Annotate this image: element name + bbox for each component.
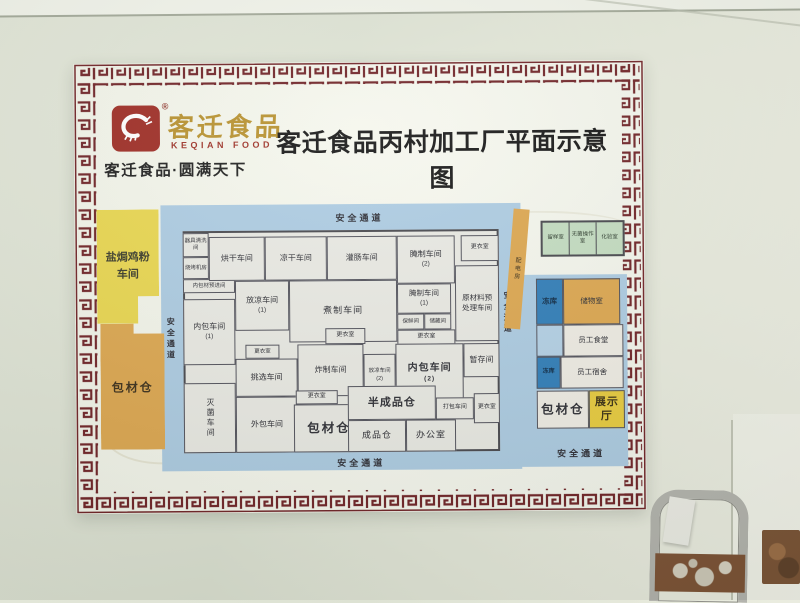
room-freezer-2: 冻库 (536, 357, 560, 389)
room-freezer-1: 冻库 (536, 279, 563, 325)
room-changing-above-frying: 更衣室 (325, 328, 365, 344)
lab-building: 留样室 无菌操作室 化验室 (541, 220, 625, 257)
brand-name-en: KEQIAN FOOD (171, 140, 273, 151)
room-sample-retention: 留样室 (543, 223, 570, 255)
factory-floorplan-sign: ® 客迁食品 KEQIAN FOOD 客迁食品·圆满天下 客迁食品丙村加工厂平面… (73, 60, 646, 514)
room-pack-material-warehouse-right: 包材仓 (537, 390, 589, 428)
room-changing-top: 更衣室 (461, 235, 499, 261)
room-finished-goods-warehouse: 成品仓 (348, 420, 406, 452)
room-utensil-washing: 器具清洗间 (183, 233, 209, 257)
floor-plan: 安全通道 安全通道 安全通道 安全通道 安全通道 盐焗鸡粉车间 包材仓 器具清洗… (94, 200, 630, 478)
room-cooling-workshop-1: 放凉车间(1) (235, 280, 289, 330)
shrimp-icon (117, 111, 155, 145)
room-unlabeled-blue (536, 325, 563, 357)
rusty-wall-fixture (762, 530, 800, 584)
room-sterile-operation: 无菌操作室 (570, 222, 597, 254)
room-curing-workshop-1: 腌制车间(1) (397, 283, 451, 313)
room-showroom: 展示厅 (589, 390, 625, 428)
room-changing-above-packstore: 更衣室 (296, 390, 338, 404)
room-temporary-storage: 暂存间 (463, 343, 499, 377)
passage-bottom-right-label: 安全通道 (536, 446, 626, 460)
room-semi-finished-warehouse: 半成品仓 (348, 385, 436, 420)
room-staff-canteen: 员工食堂 (563, 324, 623, 356)
room-small-storage: 储藏间 (424, 313, 451, 329)
room-office: 办公室 (406, 419, 456, 451)
room-outer-pack-workshop: 外包车间 (236, 396, 298, 452)
room-raw-material-pretreatment: 原材料预处理车间 (455, 265, 500, 341)
brand-tagline: 客迁食品·圆满天下 (104, 158, 247, 181)
room-salt-baked-chicken-workshop: 盐焗鸡粉车间 (96, 209, 159, 323)
passage-bottom-label: 安全通道 (311, 456, 411, 470)
room-inner-pack-workshop-1: 内包车间(1) (183, 299, 235, 365)
room-sorting-workshop: 挑选车间 (235, 358, 297, 396)
room-laboratory: 化验室 (597, 222, 623, 254)
room-packing-workshop: 打包车间 (436, 397, 474, 419)
room-drying-workshop: 烘干车间 (209, 237, 265, 281)
room-storage: 储物室 (563, 278, 620, 324)
hand-truck-plate (655, 553, 746, 593)
room-curing-workshop-2: 腌制车间(2) (397, 235, 455, 283)
room-staff-dormitory: 员工宿舍 (560, 356, 623, 388)
room-sterilization-workshop: 灭菌车间 (184, 383, 236, 453)
registered-mark: ® (162, 101, 169, 111)
room-cool-dry-workshop: 凉干车间 (265, 236, 327, 280)
passage-top-label: 安全通道 (309, 211, 409, 225)
room-changing-bottom-right: 更衣室 (474, 393, 500, 423)
room-pack-material-warehouse-left: 包材仓 (100, 323, 165, 449)
room-sausage-workshop: 灌肠车间 (327, 236, 397, 280)
room-fresh-keeping: 保鲜间 (397, 314, 424, 330)
brand-logo (112, 105, 160, 151)
room-changing-small-mid: 更衣室 (245, 345, 279, 359)
passage-left-label: 安全通道 (165, 317, 176, 361)
room-bbq-machine: 烧烤机房 (183, 257, 209, 279)
sign-title: 客迁食品丙村加工厂平面示意图 (264, 121, 620, 195)
